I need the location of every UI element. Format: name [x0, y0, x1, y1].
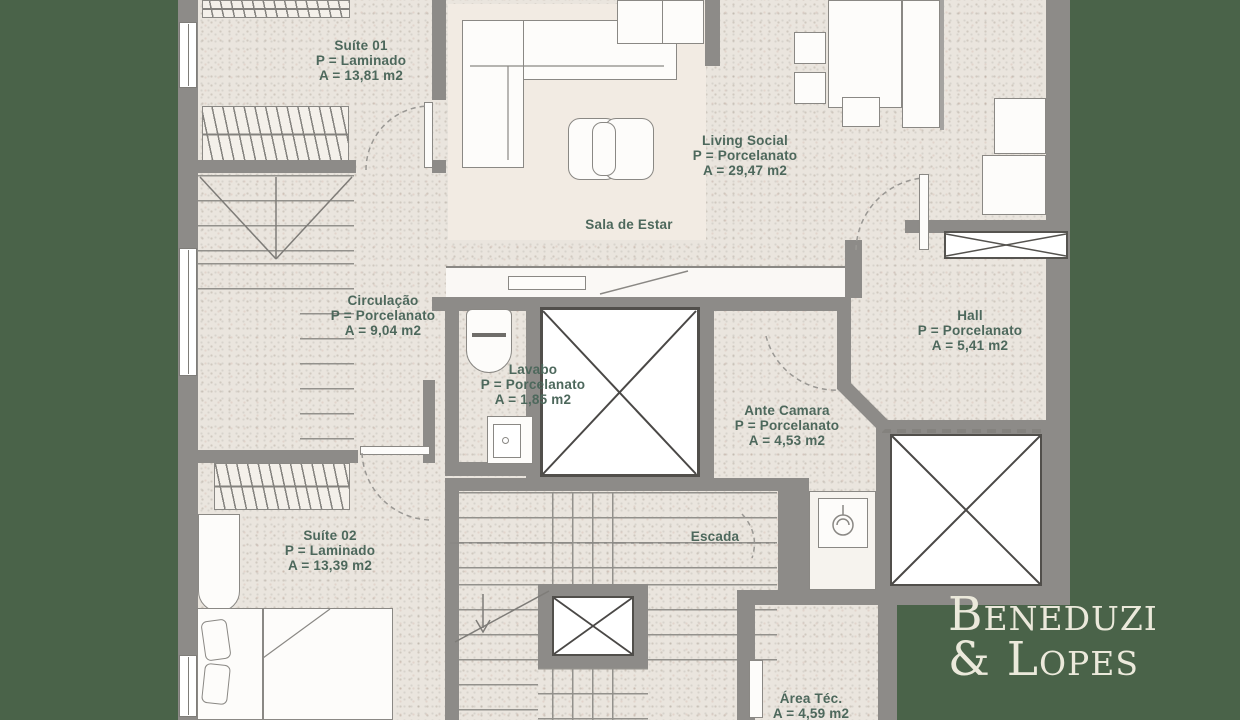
escada-door-arc: [742, 514, 754, 558]
water-heater-icon: [833, 505, 853, 535]
room-label-sala-de-estar: Sala de Estar: [585, 217, 672, 232]
antecamara-door-arc: [766, 336, 840, 390]
stairs-upper-diagonals: [200, 177, 352, 259]
room-label-circulacao: CirculaçãoP = PorcelanatoA = 9,04 m2: [331, 293, 435, 338]
room-label-suite-02: Suíte 02P = LaminadoA = 13,39 m2: [285, 528, 375, 573]
brand-line-1: Beneduzi: [948, 592, 1158, 637]
suite02-door-arc: [362, 453, 431, 520]
sofa-seat-lines: [470, 66, 664, 160]
antecamara-diagonal-wall: [842, 384, 886, 428]
brand-line-2: & Lopes: [948, 637, 1158, 682]
elevator2-x-icon: [892, 436, 1040, 584]
bed-fold-line: [263, 609, 330, 658]
escada-direction-lines: [455, 591, 549, 642]
brand-logo: Beneduzi & Lopes: [948, 592, 1158, 682]
room-label-escada: Escada: [691, 529, 739, 544]
hall-door-arc: [856, 178, 922, 250]
hall-sill-x-icon: [946, 234, 1066, 256]
room-label-suite-01: Suíte 01P = LaminadoA = 13,81 m2: [316, 38, 406, 83]
room-label-hall: HallP = PorcelanatoA = 5,41 m2: [918, 308, 1022, 353]
stair-shaft-x-icon: [554, 598, 632, 654]
suite01-door-arc: [366, 106, 428, 170]
room-label-living-social: Living SocialP = PorcelanatoA = 29,47 m2: [693, 133, 797, 178]
room-label-area-tec: Área Téc.A = 4,59 m2: [773, 691, 849, 720]
room-label-ante-camara: Ante CamaraP = PorcelanatoA = 4,53 m2: [735, 403, 839, 448]
room-label-lavabo: LavaboP = PorcelanatoA = 1,85 m2: [481, 362, 585, 407]
corridor-door-line: [600, 271, 688, 294]
floor-plan-canvas: Suíte 01P = LaminadoA = 13,81 m2 Living …: [0, 0, 1240, 720]
